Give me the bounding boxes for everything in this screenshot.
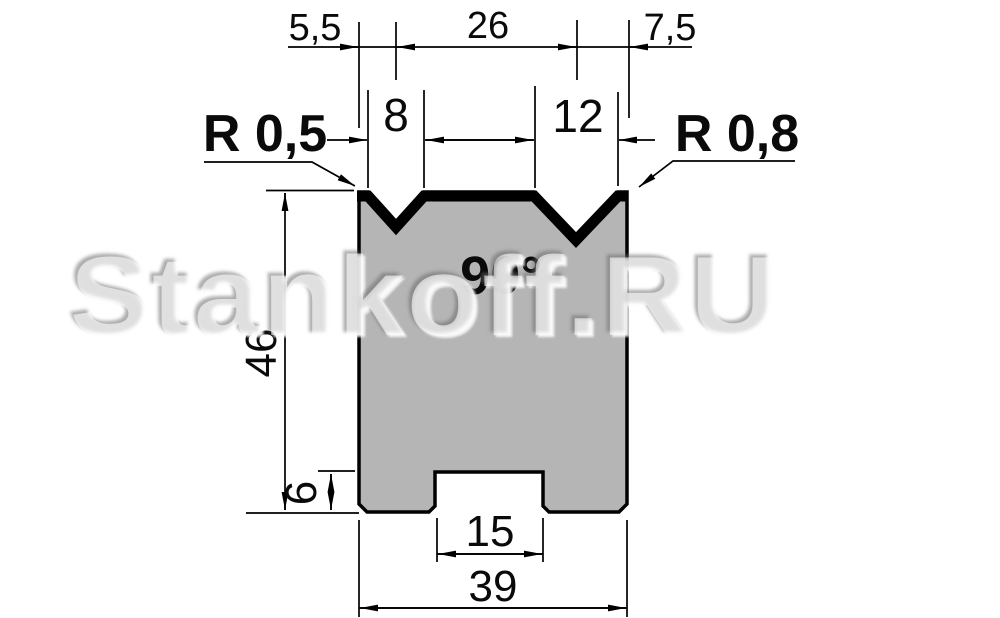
dim-vee-left-width-value: 8 <box>383 89 409 141</box>
radius-right-label: R 0,8 <box>675 105 799 163</box>
leader-radius-right <box>639 161 795 187</box>
dim-foot-height-value: 6 <box>277 481 326 505</box>
dim-slot-width-value: 15 <box>466 507 515 556</box>
dim-vee-spacing-value: 26 <box>467 5 509 47</box>
dim-body-height-value: 46 <box>237 329 286 378</box>
die-body-group <box>357 192 628 512</box>
dim-body-width-value: 39 <box>469 562 518 611</box>
leader-radius-left <box>204 162 355 186</box>
vee-angle-label: 90° <box>460 246 542 306</box>
die-body-shape <box>359 192 627 512</box>
dim-offset-right-value: 7,5 <box>644 7 697 49</box>
dim-vee-right-width-value: 12 <box>552 90 603 142</box>
technical-drawing-page: 5,5 26 7,5 8 12 R 0,5 R 0,8 90° 46 6 15 … <box>0 0 1000 618</box>
die-cross-section-drawing: 5,5 26 7,5 8 12 R 0,5 R 0,8 90° 46 6 15 … <box>0 0 1000 618</box>
dim-offset-left-value: 5,5 <box>289 7 342 49</box>
radius-left-label: R 0,5 <box>203 105 327 163</box>
